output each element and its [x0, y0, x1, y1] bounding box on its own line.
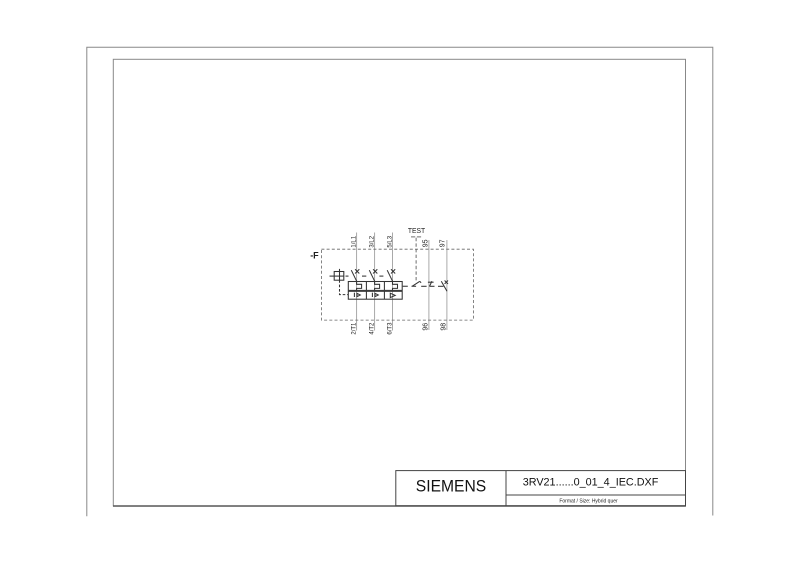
svg-text:3/L2: 3/L2: [370, 235, 376, 247]
svg-text:3RV21......0_01_4_IEC.DXF: 3RV21......0_01_4_IEC.DXF: [523, 477, 659, 489]
svg-text:97: 97: [439, 239, 446, 247]
svg-text:95: 95: [423, 239, 430, 247]
svg-text:1/L1: 1/L1: [352, 235, 358, 247]
svg-text:Format / Size: Hybrid quer: Format / Size: Hybrid quer: [559, 498, 618, 504]
svg-text:2/T1: 2/T1: [352, 322, 358, 335]
svg-text:96: 96: [423, 323, 430, 331]
svg-text:6/T3: 6/T3: [388, 322, 394, 335]
svg-text:98: 98: [441, 323, 448, 331]
svg-text:-F: -F: [310, 251, 319, 261]
svg-text:TEST: TEST: [408, 226, 426, 235]
svg-text:5/L3: 5/L3: [388, 235, 394, 247]
svg-text:SIEMENS: SIEMENS: [416, 478, 487, 496]
svg-text:4/T2: 4/T2: [370, 322, 376, 335]
